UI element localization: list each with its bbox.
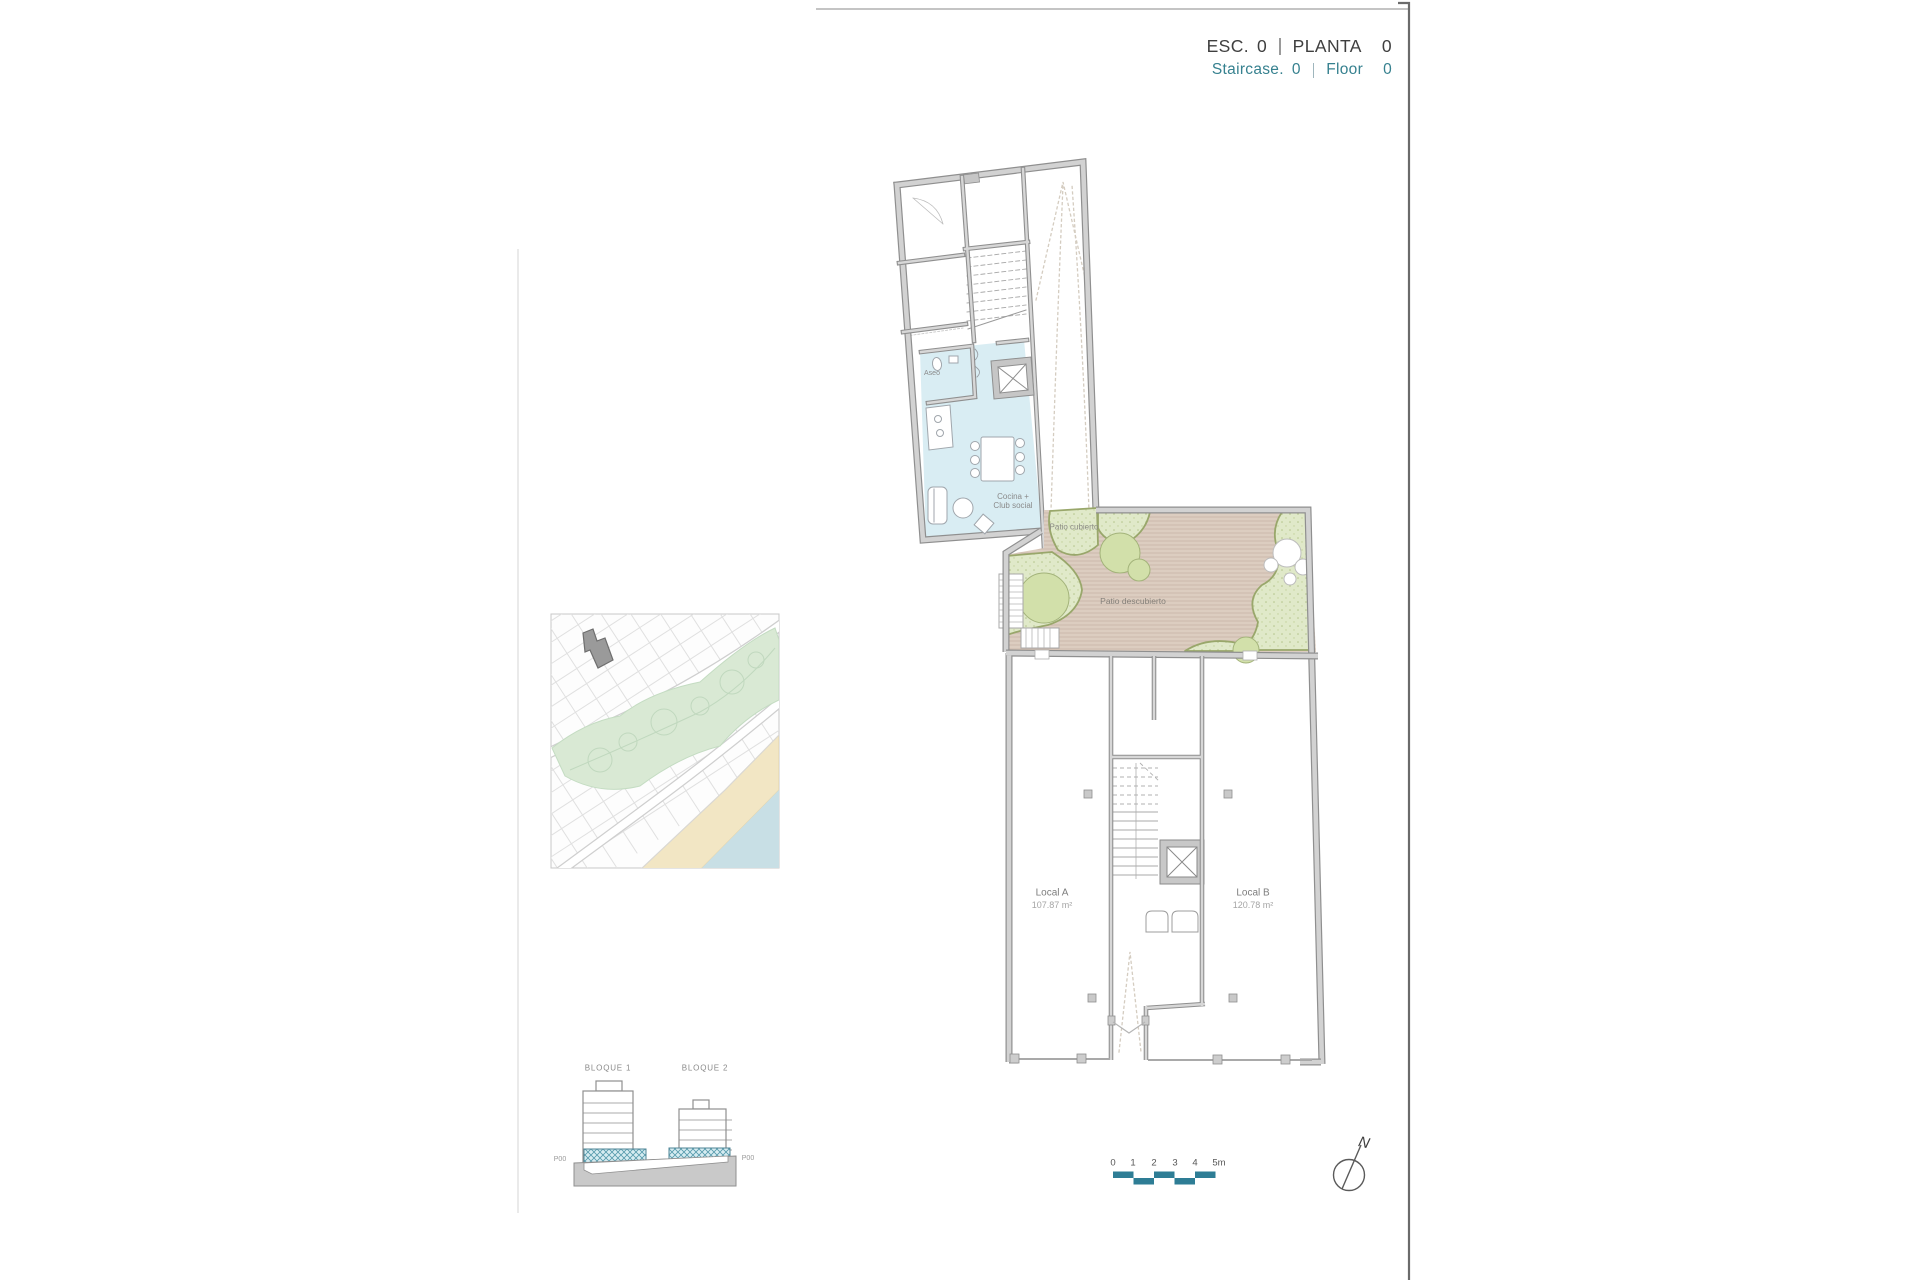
north-arrow bbox=[1334, 1145, 1365, 1191]
cocina-line2: Club social bbox=[993, 501, 1032, 510]
floor-label: Floor bbox=[1326, 61, 1363, 79]
elevator-wing bbox=[991, 357, 1034, 399]
plan-title-es: ESC. 0 PLANTA 0 bbox=[1207, 36, 1392, 57]
plan-title-en: Staircase. 0 Floor 0 bbox=[1207, 61, 1392, 79]
planta-label: PLANTA bbox=[1293, 36, 1362, 57]
elevation-level-right: P00 bbox=[742, 1155, 754, 1163]
staircase-label: Staircase. bbox=[1212, 61, 1284, 79]
scale-tick-4: 4 bbox=[1192, 1159, 1197, 1170]
room-label-patio-descubierto: Patio descubierto bbox=[1100, 597, 1166, 607]
planta-value: 0 bbox=[1382, 36, 1392, 57]
site-location-map bbox=[334, 444, 906, 951]
room-label-local-b: Local B bbox=[1236, 887, 1269, 899]
staircase-value: 0 bbox=[1292, 61, 1301, 79]
elevation-label-bloque2: BLOQUE 2 bbox=[682, 1063, 728, 1072]
elevation-level-left: P00 bbox=[554, 1156, 566, 1164]
scale-tick-1: 1 bbox=[1130, 1159, 1135, 1170]
elevation-diagram bbox=[574, 1081, 736, 1186]
scale-bar bbox=[1113, 1172, 1216, 1185]
plan-sheet-page: { "header": { "esc_label": "ESC.", "esc_… bbox=[0, 0, 1920, 1280]
floorplan-drawing bbox=[0, 0, 1920, 1280]
floor-value: 0 bbox=[1383, 61, 1392, 79]
scale-tick-5m: 5m bbox=[1212, 1159, 1225, 1170]
room-label-local-a: Local A bbox=[1036, 887, 1069, 899]
room-area-local-b: 120.78 m² bbox=[1233, 900, 1274, 910]
esc-label: ESC. bbox=[1207, 36, 1249, 57]
room-area-local-a: 107.87 m² bbox=[1032, 900, 1073, 910]
header-divider-en bbox=[1313, 63, 1315, 78]
lower-building bbox=[1006, 650, 1321, 1064]
storefront bbox=[1010, 1016, 1312, 1064]
room-label-patio-cubierto: Patio cubierto bbox=[1050, 522, 1099, 531]
scale-tick-0: 0 bbox=[1110, 1159, 1115, 1170]
esc-value: 0 bbox=[1257, 36, 1267, 57]
sheet-header: ESC. 0 PLANTA 0 Staircase. 0 Floor 0 bbox=[1207, 36, 1392, 79]
scale-tick-3: 3 bbox=[1172, 1159, 1177, 1170]
header-divider bbox=[1279, 38, 1281, 55]
scale-tick-2: 2 bbox=[1151, 1159, 1156, 1170]
cocina-line1: Cocina + bbox=[993, 492, 1032, 501]
elevator-core bbox=[1160, 840, 1204, 884]
elevation-label-bloque1: BLOQUE 1 bbox=[585, 1063, 631, 1072]
room-label-cocina: Cocina + Club social bbox=[993, 492, 1032, 510]
room-label-aseo: Aseo bbox=[924, 370, 940, 378]
patio-area bbox=[999, 508, 1322, 1064]
